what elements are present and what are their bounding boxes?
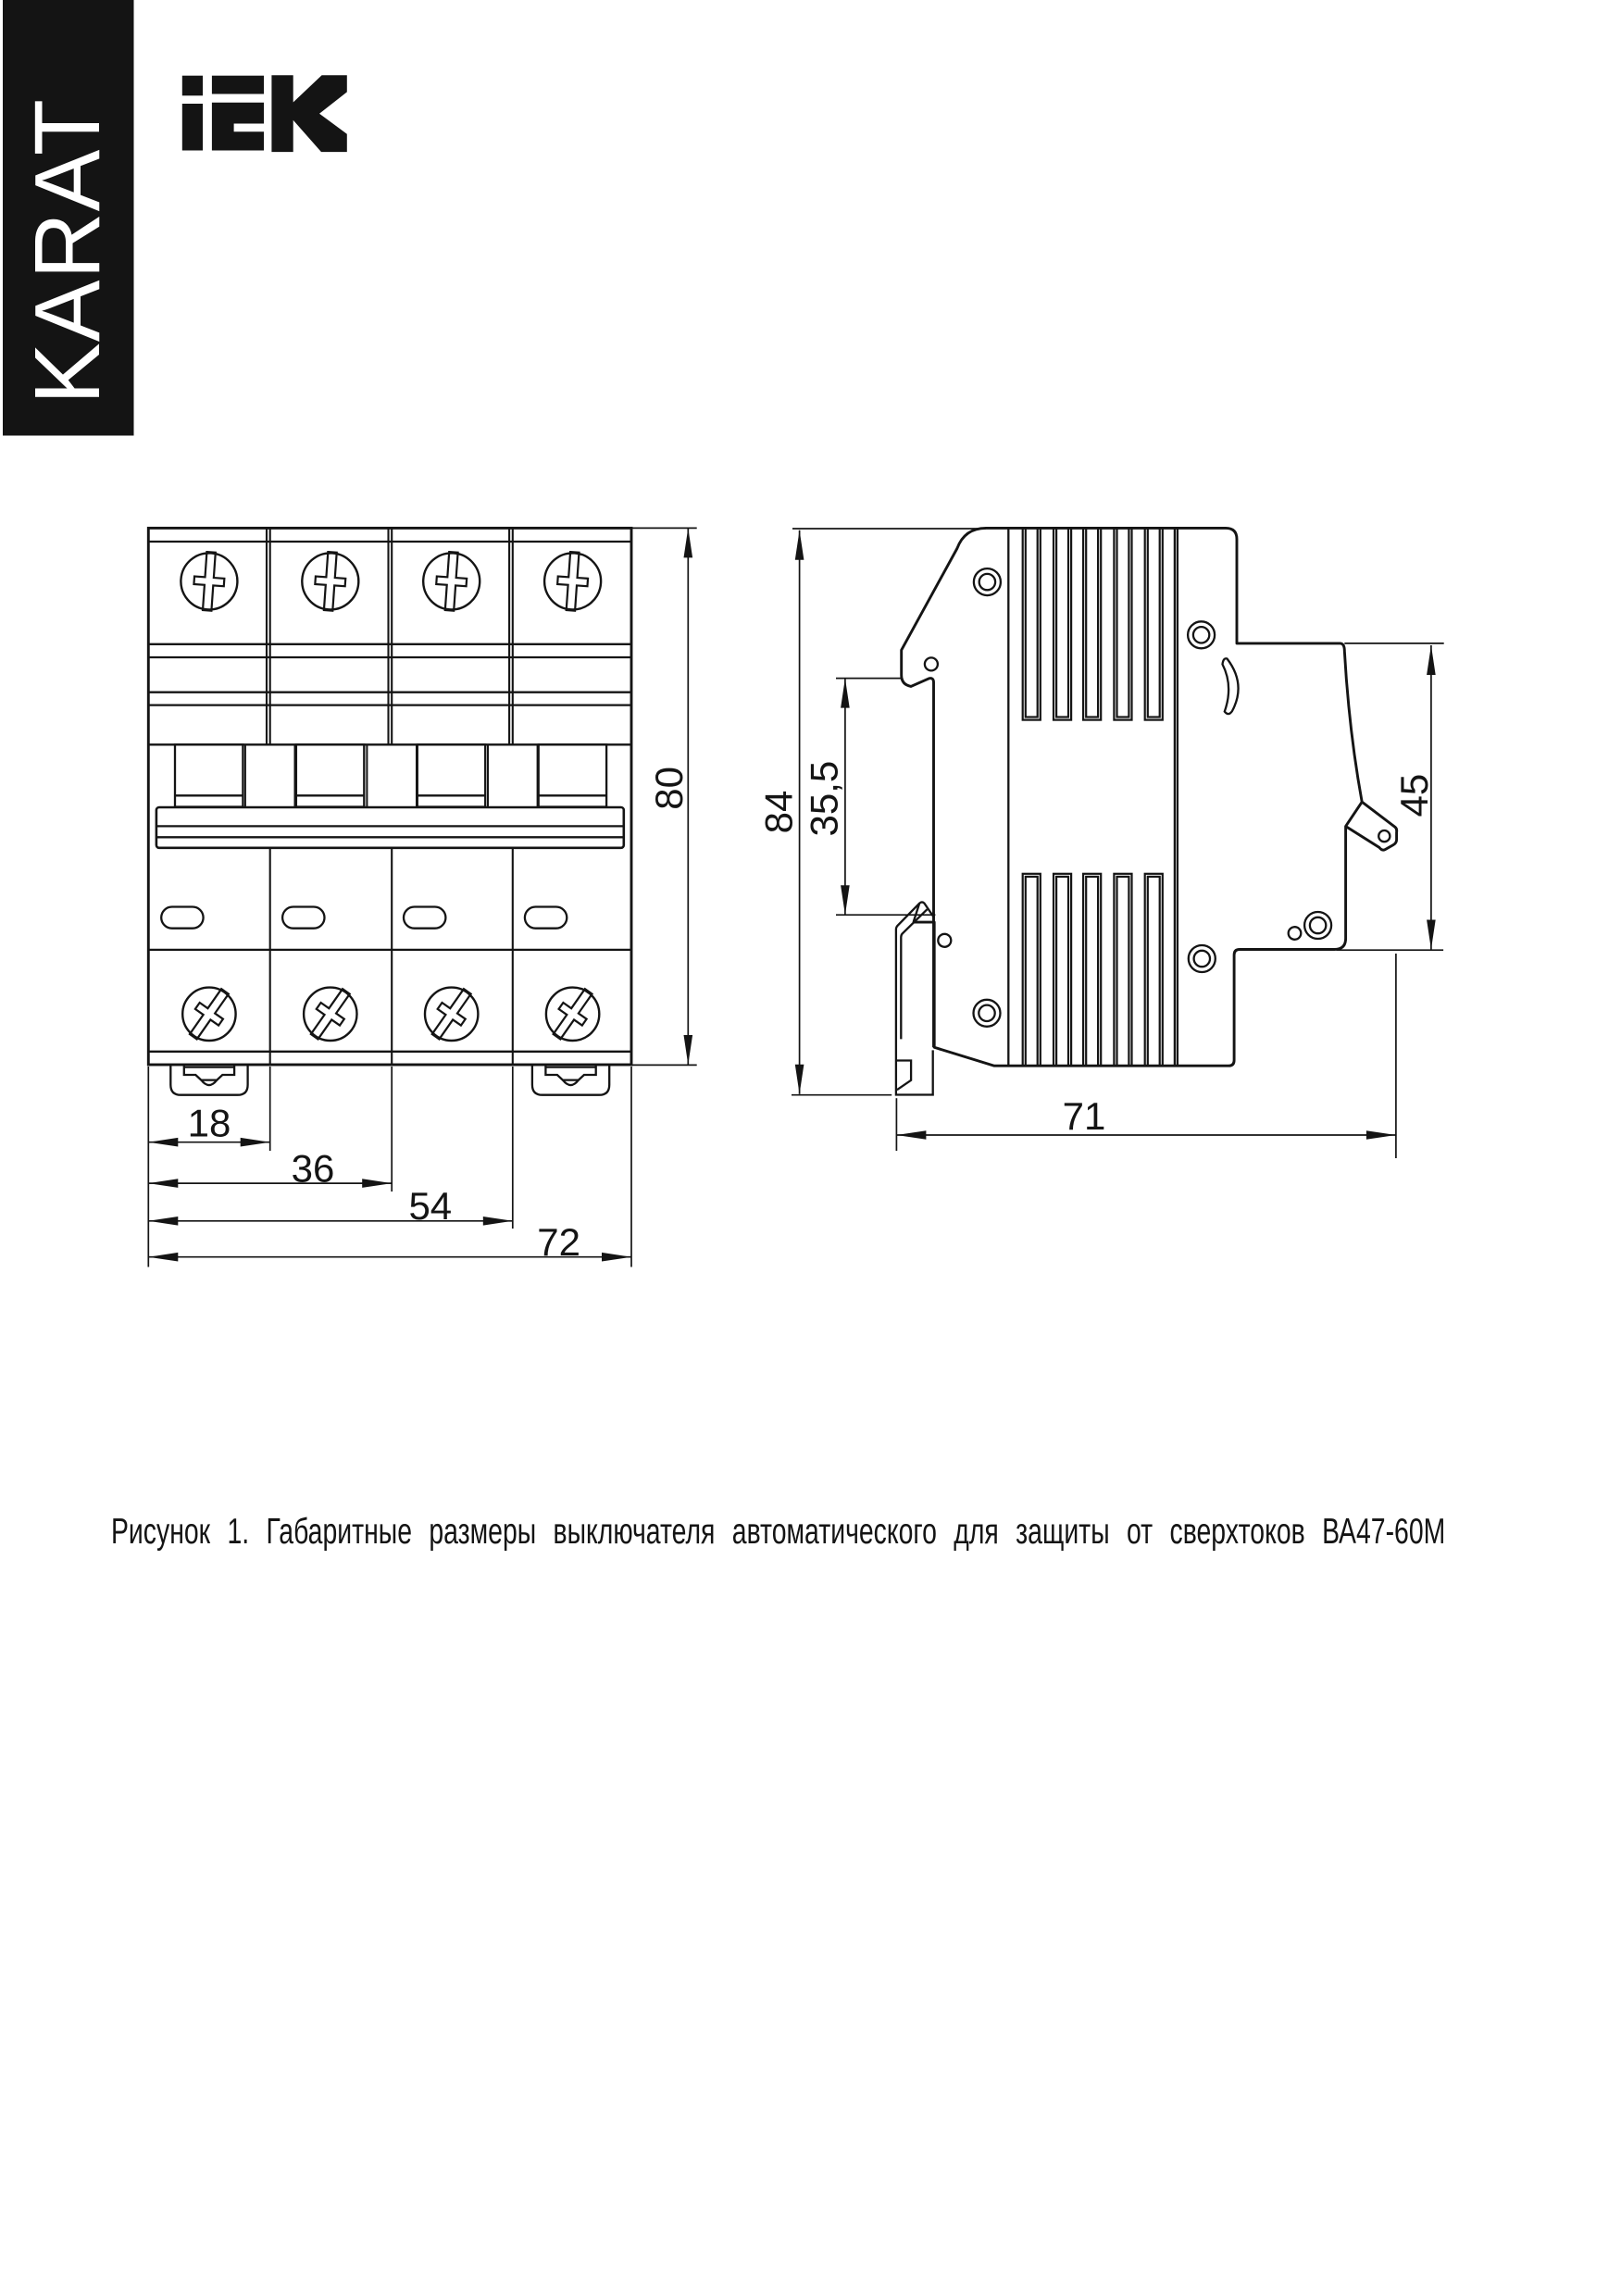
svg-text:35,5: 35,5	[802, 761, 845, 837]
svg-text:54: 54	[408, 1184, 452, 1228]
svg-text:84: 84	[757, 791, 801, 834]
svg-text:71: 71	[1063, 1094, 1106, 1138]
svg-text:36: 36	[292, 1146, 335, 1190]
svg-text:45: 45	[1392, 774, 1436, 817]
svg-text:18: 18	[188, 1102, 231, 1145]
svg-text:72: 72	[537, 1220, 580, 1264]
svg-text:KARAT: KARAT	[16, 98, 119, 405]
svg-text:80: 80	[647, 767, 691, 810]
